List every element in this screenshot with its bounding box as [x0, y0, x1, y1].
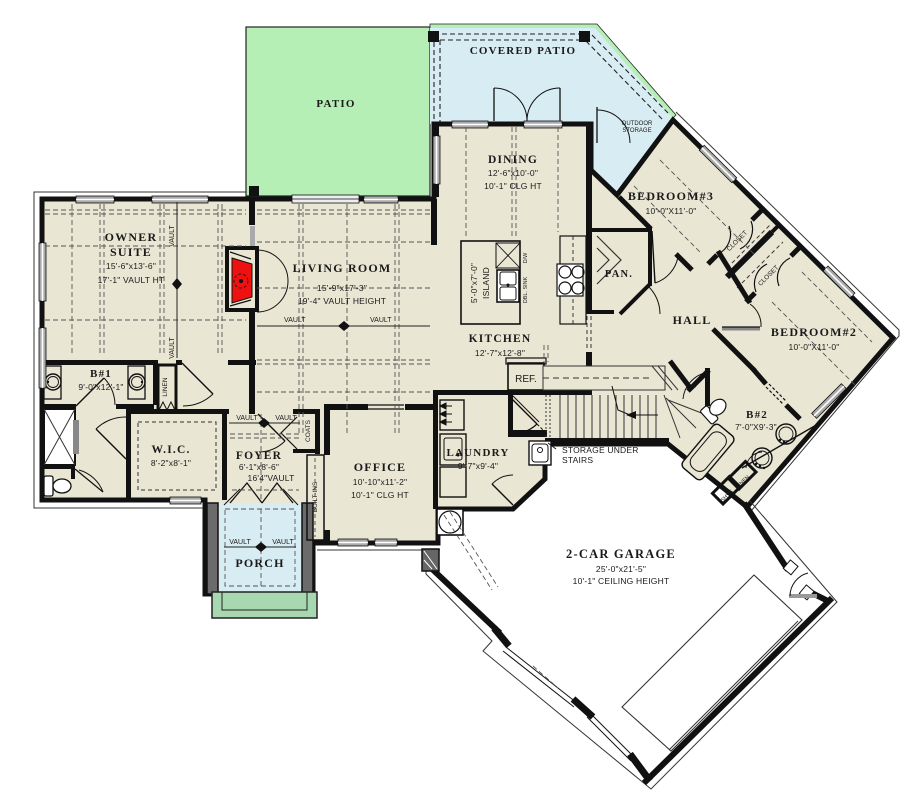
svg-text:BEDROOM#2: BEDROOM#2	[771, 325, 857, 339]
svg-text:2-CAR GARAGE: 2-CAR GARAGE	[566, 547, 676, 561]
svg-text:OUTDOOR: OUTDOOR	[622, 121, 653, 127]
svg-text:10'-1" CLG HT: 10'-1" CLG HT	[484, 181, 542, 191]
svg-text:VAULT: VAULT	[229, 539, 251, 546]
svg-text:10'-10"x11'-2": 10'-10"x11'-2"	[353, 477, 407, 487]
svg-text:PORCH: PORCH	[235, 556, 284, 570]
svg-text:9'-7"x9'-4": 9'-7"x9'-4"	[458, 461, 498, 471]
svg-text:VAULT: VAULT	[370, 317, 392, 324]
svg-text:B#2: B#2	[746, 409, 768, 421]
svg-text:B#1: B#1	[90, 368, 112, 380]
svg-text:STORAGE: STORAGE	[622, 128, 651, 134]
svg-text:ISLAND: ISLAND	[481, 267, 491, 299]
svg-text:15'-6"x13'-6": 15'-6"x13'-6"	[106, 261, 156, 271]
svg-text:PAN.: PAN.	[605, 269, 633, 280]
svg-text:16'4"VAULT: 16'4"VAULT	[248, 473, 295, 483]
svg-text:10'-1" CLG HT: 10'-1" CLG HT	[351, 490, 409, 500]
svg-text:DBL. SINK: DBL. SINK	[523, 276, 529, 303]
svg-text:VAULT: VAULT	[169, 337, 176, 359]
svg-text:9'-0"x12'-1": 9'-0"x12'-1"	[78, 382, 123, 392]
svg-text:COATS: COATS	[305, 419, 312, 442]
svg-text:15'-9"x17'-3": 15'-9"x17'-3"	[317, 283, 367, 293]
svg-text:LAUNDRY: LAUNDRY	[446, 447, 509, 459]
svg-text:8'-2"x8'-1": 8'-2"x8'-1"	[151, 458, 191, 468]
svg-text:DINING: DINING	[488, 154, 538, 166]
svg-text:STORAGE UNDER: STORAGE UNDER	[562, 445, 639, 455]
svg-text:25'-0"x21'-5": 25'-0"x21'-5"	[596, 564, 646, 574]
svg-text:BUILT-INS: BUILT-INS	[312, 481, 319, 512]
svg-text:LINEN: LINEN	[162, 377, 169, 396]
svg-text:12'-6"x10'-0": 12'-6"x10'-0"	[488, 168, 538, 178]
svg-text:KITCHEN: KITCHEN	[469, 333, 532, 345]
svg-text:LIVING ROOM: LIVING ROOM	[293, 261, 392, 275]
svg-text:10'-1" CEILING HEIGHT: 10'-1" CEILING HEIGHT	[573, 576, 670, 586]
svg-text:7'-0"X9'-3": 7'-0"X9'-3"	[735, 422, 777, 432]
svg-text:STAIRS: STAIRS	[562, 455, 593, 465]
svg-text:SUITE: SUITE	[110, 245, 152, 259]
svg-text:VAULT: VAULT	[169, 225, 176, 247]
svg-text:COVERED PATIO: COVERED PATIO	[470, 45, 577, 57]
svg-text:OWNER: OWNER	[105, 230, 158, 244]
svg-text:10'-0"X11'-0": 10'-0"X11'-0"	[646, 206, 697, 216]
svg-text:10'-0"X11'-0": 10'-0"X11'-0"	[789, 342, 840, 352]
svg-text:FOYER: FOYER	[236, 450, 282, 462]
svg-text:VAULT: VAULT	[236, 415, 258, 422]
svg-text:5'-0"x7'-0": 5'-0"x7'-0"	[469, 263, 479, 303]
svg-text:17'-1" VAULT HT: 17'-1" VAULT HT	[98, 275, 165, 285]
svg-text:VAULT: VAULT	[284, 317, 306, 324]
svg-text:REF.: REF.	[515, 374, 537, 385]
svg-text:OFFICE: OFFICE	[354, 460, 407, 474]
svg-text:VAULT: VAULT	[272, 539, 294, 546]
svg-text:BEDROOM#3: BEDROOM#3	[628, 189, 714, 203]
svg-text:PATIO: PATIO	[316, 98, 355, 110]
svg-text:HALL: HALL	[673, 313, 712, 327]
svg-text:12'-7"x12'-8": 12'-7"x12'-8"	[475, 348, 525, 358]
svg-text:VAULT: VAULT	[275, 415, 297, 422]
svg-text:D/W: D/W	[523, 252, 529, 264]
svg-text:6'-1"x8'-6": 6'-1"x8'-6"	[239, 462, 279, 472]
svg-text:W.I.C.: W.I.C.	[151, 444, 190, 456]
svg-text:19'-4" VAULT HEIGHT: 19'-4" VAULT HEIGHT	[298, 296, 386, 306]
